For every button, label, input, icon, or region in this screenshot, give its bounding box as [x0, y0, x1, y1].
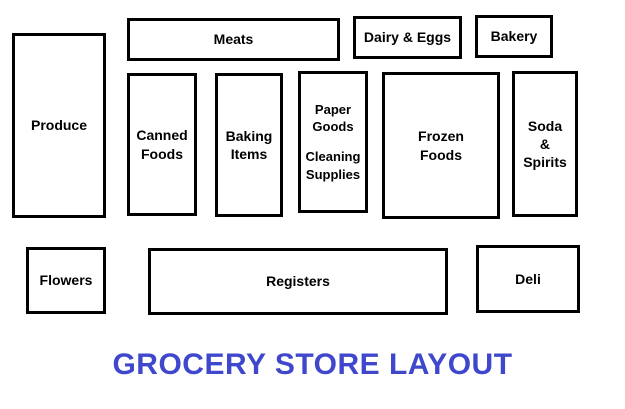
room-label: Deli: [515, 270, 541, 288]
room-label: Flowers: [40, 271, 93, 289]
room-frozen-foods: Frozen Foods: [382, 72, 500, 219]
room-canned-foods: Canned Foods: [127, 73, 197, 216]
room-soda-spirits: Soda & Spirits: [512, 71, 578, 217]
room-label: Registers: [266, 272, 330, 290]
room-label: Soda & Spirits: [523, 117, 567, 172]
diagram-title: GROCERY STORE LAYOUT: [0, 348, 625, 382]
room-label: Bakery: [491, 27, 538, 45]
room-paper-goods-cleaning-supplies: Paper Goods Cleaning Supplies: [298, 71, 368, 213]
room-flowers: Flowers: [26, 247, 106, 314]
room-dairy-eggs: Dairy & Eggs: [353, 16, 462, 59]
room-label: Produce: [31, 116, 87, 134]
room-baking-items: Baking Items: [215, 73, 283, 217]
room-registers: Registers: [148, 248, 448, 315]
room-bakery: Bakery: [475, 15, 553, 58]
grocery-store-layout-diagram: Produce Meats Dairy & Eggs Bakery Canned…: [0, 0, 625, 409]
room-label: Meats: [214, 30, 254, 48]
room-label-cleaning-supplies: Cleaning Supplies: [306, 148, 361, 183]
room-label-paper-goods: Paper Goods: [312, 101, 353, 136]
room-deli: Deli: [476, 245, 580, 313]
room-produce: Produce: [12, 33, 106, 218]
room-meats: Meats: [127, 18, 340, 61]
room-label: Frozen Foods: [418, 127, 464, 163]
room-label: Canned Foods: [136, 126, 187, 162]
room-label: Dairy & Eggs: [364, 28, 451, 46]
room-label: Baking Items: [226, 127, 273, 163]
